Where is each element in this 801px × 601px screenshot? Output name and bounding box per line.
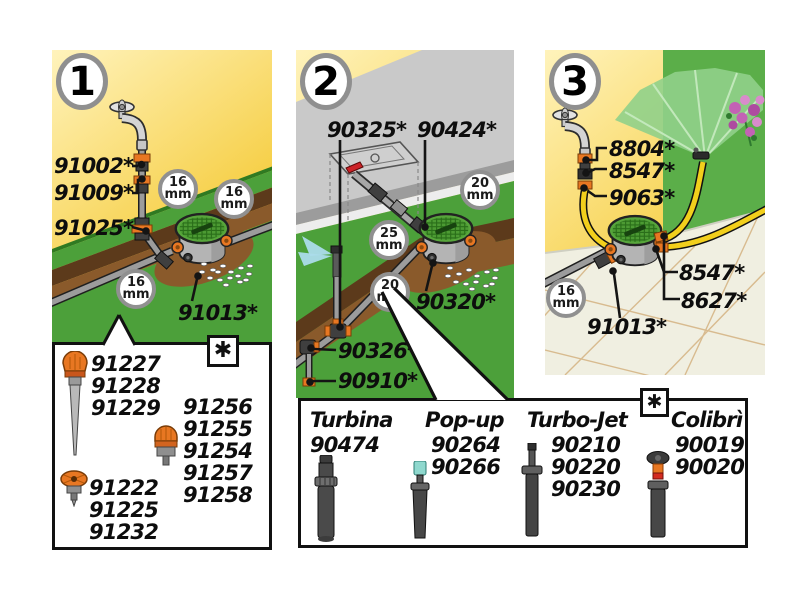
asterisk-reference-box: ✱ [207, 335, 239, 367]
callout-8547-bottom: 8547* [679, 262, 744, 284]
part-code: 90020 [675, 457, 744, 478]
callout-90910: 90910* [338, 370, 417, 392]
callout-8627: 8627* [681, 290, 746, 312]
step-number-1: 1 [56, 53, 108, 110]
part-code: 91225 [89, 500, 158, 521]
badge-unit: mm [122, 289, 149, 301]
part-code: 91229 [91, 398, 160, 419]
part-code: 91222 [89, 478, 158, 499]
part-code: 91228 [91, 376, 160, 397]
badge-unit: mm [376, 292, 403, 304]
panel-step-1: 1 91002* 91009* 91025* 91013* 16 mm 16 m… [52, 50, 272, 342]
part-code: 90230 [551, 479, 620, 500]
pipe-size-badge-20mm: 20 mm [370, 272, 410, 312]
valve-box-icon [172, 214, 232, 264]
step-number-3-label: 3 [561, 62, 589, 102]
callout-91009: 91009* [54, 182, 133, 204]
turbina-sprinkler-icon [313, 455, 339, 543]
callout-91013: 91013* [587, 316, 666, 338]
part-code: 90210 [551, 435, 620, 456]
badge-unit: mm [552, 298, 579, 310]
part-code: 91257 [183, 463, 252, 484]
asterisk-icon: ✱ [214, 340, 232, 362]
part-code: 90264 [431, 435, 500, 456]
panel-step-2: 2 90325* 90424* 90320* 90326* 90910* 20 … [296, 50, 514, 398]
spike-sprinkler-icon [60, 351, 90, 459]
pipe-size-badge-25mm: 25 mm [369, 220, 409, 260]
turbo-jet-sprinkler-icon [521, 443, 543, 543]
pipe-size-badge-16mm: 16 mm [214, 179, 254, 219]
callout-90325: 90325* [327, 119, 406, 141]
step-number-2: 2 [300, 53, 352, 110]
callout-90320: 90320* [416, 291, 495, 313]
colibri-sprinkler-icon [645, 451, 671, 541]
panel-step-3: 3 8804* 8547* 9063* 8547* 8627* 91013* 1… [545, 50, 765, 375]
micro-sprinkler-icon [58, 469, 90, 507]
callout-9063: 9063* [609, 187, 674, 209]
part-code: 91227 [91, 354, 160, 375]
badge-unit: mm [164, 189, 191, 201]
badge-unit: mm [220, 199, 247, 211]
part-code: 91256 [183, 397, 252, 418]
pipe-size-badge-20mm: 20 mm [460, 170, 500, 210]
part-code: 91258 [183, 485, 252, 506]
callout-91002: 91002* [54, 155, 133, 177]
sprinkler-type-name: Turbina [310, 410, 393, 431]
part-code: 90019 [675, 435, 744, 456]
step-number-2-label: 2 [312, 62, 340, 102]
tap-connector-fittings [578, 154, 592, 189]
pipe-size-badge-16mm: 16 mm [546, 278, 586, 318]
sprinkler-type-name: Pop-up [425, 410, 504, 431]
sprinkler-type-name: Colibrì [671, 410, 742, 431]
pop-up-sprinkler-icon [409, 461, 431, 543]
parts-list-box-1: 91227 91228 91229 91256 91255 91254 9125… [52, 342, 272, 550]
sprinkler-head-icon [151, 423, 181, 473]
part-code: 91254 [183, 441, 252, 462]
sprinkler-type-name: Turbo-Jet [527, 410, 627, 431]
step-number-3: 3 [549, 53, 601, 110]
callout-91025: 91025* [54, 217, 133, 239]
valve-box-icon [416, 214, 476, 264]
irrigation-instruction-sheet: 1 91002* 91009* 91025* 91013* 16 mm 16 m… [0, 0, 801, 601]
part-code: 91232 [89, 522, 158, 543]
badge-unit: mm [466, 190, 493, 202]
callout-90326: 90326* [338, 340, 417, 362]
step-number-1-label: 1 [68, 62, 96, 102]
sprinkler-types-box: Turbina 90474 Pop-up 90264 90266 Turbo-J… [298, 398, 748, 548]
asterisk-reference-box: ✱ [640, 388, 669, 417]
part-code: 90474 [310, 435, 379, 456]
badge-unit: mm [375, 240, 402, 252]
callout-8804: 8804* [609, 138, 674, 160]
part-code: 90220 [551, 457, 620, 478]
pipe-size-badge-16mm: 16 mm [158, 169, 198, 209]
part-code: 91255 [183, 419, 252, 440]
callout-8547-top: 8547* [609, 160, 674, 182]
callout-91013: 91013* [178, 302, 257, 324]
callout-90424: 90424* [417, 119, 496, 141]
part-code: 90266 [431, 457, 500, 478]
pipe-size-badge-16mm: 16 mm [116, 269, 156, 309]
asterisk-icon: ✱ [647, 393, 663, 412]
